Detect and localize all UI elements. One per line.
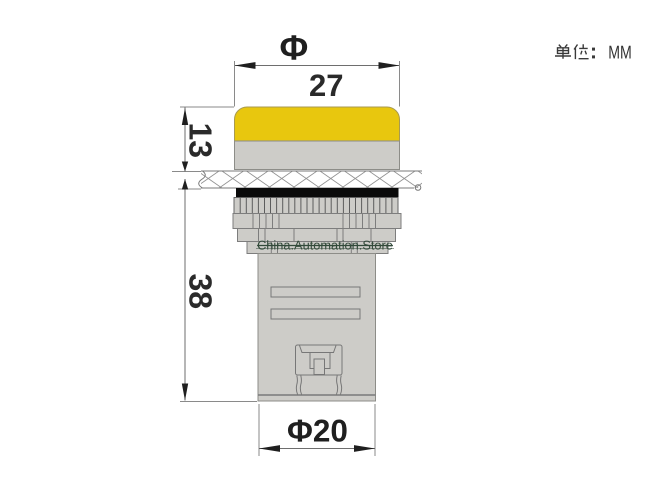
svg-text:27: 27 <box>309 68 343 103</box>
svg-text:38: 38 <box>183 274 219 310</box>
svg-text:Φ20: Φ20 <box>287 413 348 449</box>
svg-text:China.Automation.Store: China.Automation.Store <box>257 238 393 253</box>
svg-text:MM: MM <box>608 42 632 63</box>
svg-text:13: 13 <box>183 123 219 159</box>
svg-text:Φ: Φ <box>280 29 309 68</box>
